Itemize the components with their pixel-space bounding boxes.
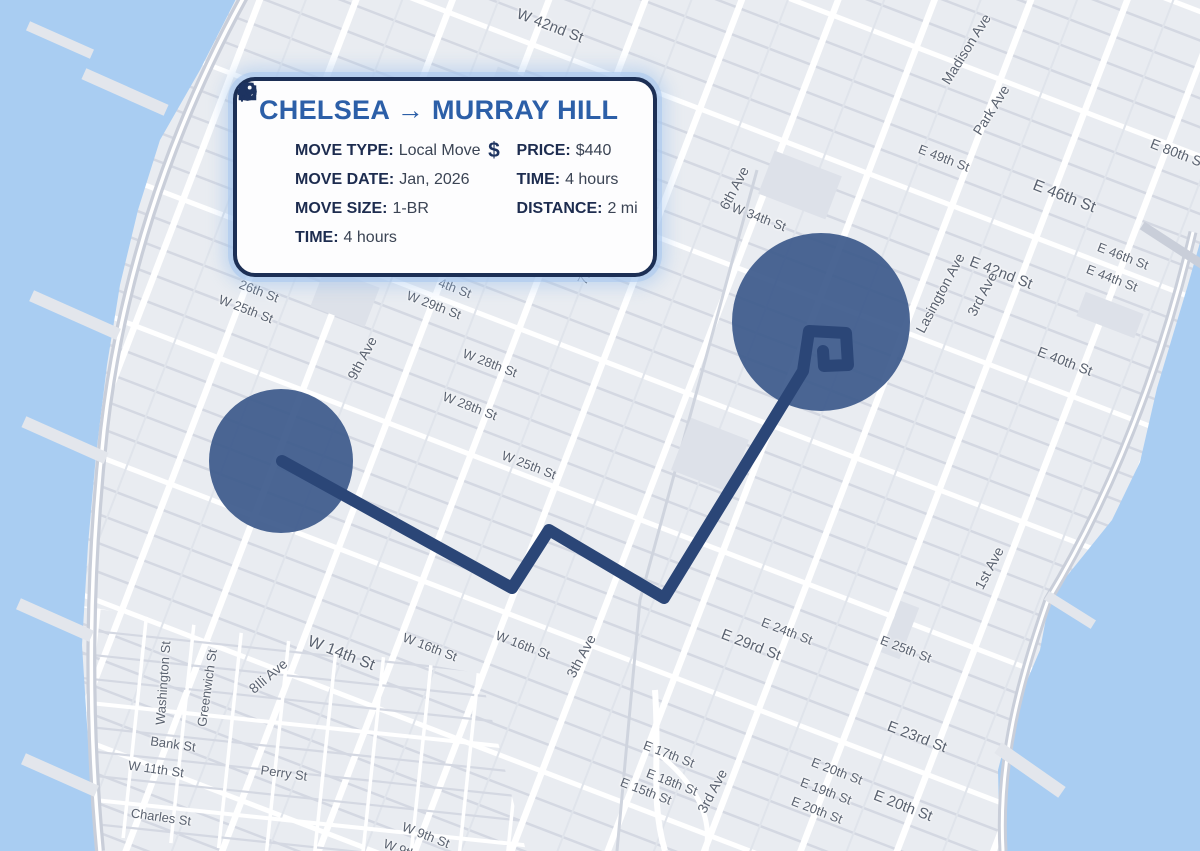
card-field-price: PRICE:$440	[517, 142, 612, 160]
field-label: TIME:	[295, 229, 339, 246]
field-label: MOVE DATE:	[295, 171, 394, 188]
card-row-distance: DISTANCE:2 mi	[481, 194, 638, 223]
card-row-move-size: MOVE SIZE:1-BR	[259, 194, 481, 223]
card-row-move-date: MOVE DATE:Jan, 2026	[259, 165, 481, 194]
field-value: Jan, 2026	[399, 171, 469, 188]
field-label: PRICE:	[517, 142, 571, 159]
card-body: MOVE TYPE:Local MoveMOVE DATE:Jan, 2026M…	[259, 136, 633, 252]
map-canvas: W 42nd StMadison AvePark AveE 49th StE 8…	[0, 0, 1200, 851]
field-value: 4 hours	[344, 229, 397, 246]
card-field-distance: DISTANCE:2 mi	[517, 200, 638, 218]
field-value: 4 hours	[565, 171, 618, 188]
field-value: $440	[576, 142, 612, 159]
field-label: MOVE TYPE:	[295, 142, 394, 159]
dollar-icon: $	[481, 140, 508, 162]
card-column-right: $PRICE:$440TIME:4 hoursDISTANCE:2 mi	[481, 136, 638, 252]
home-icon	[259, 198, 286, 220]
card-column-left: MOVE TYPE:Local MoveMOVE DATE:Jan, 2026M…	[259, 136, 481, 252]
clock-icon	[481, 169, 508, 191]
card-field-move-size: MOVE SIZE:1-BR	[295, 200, 429, 218]
move-summary-card: CHELSEA → MURRAY HILL MOVE TYPE:Local Mo…	[233, 77, 657, 277]
truck-icon	[259, 140, 286, 162]
calendar-icon	[259, 169, 286, 191]
card-row-move-type: MOVE TYPE:Local Move	[259, 136, 481, 165]
field-value: 2 mi	[607, 200, 637, 217]
card-field-move-type: MOVE TYPE:Local Move	[295, 142, 481, 160]
card-row-price: $PRICE:$440	[481, 136, 638, 165]
field-value: 1-BR	[392, 200, 428, 217]
card-row-time: TIME:4 hours	[481, 165, 638, 194]
card-field-move-date: MOVE DATE:Jan, 2026	[295, 171, 470, 189]
card-field-time: TIME:4 hours	[517, 171, 619, 189]
pin-icon	[481, 198, 508, 220]
card-row-time: TIME:4 hours	[259, 223, 481, 252]
field-label: MOVE SIZE:	[295, 200, 387, 217]
card-title: CHELSEA → MURRAY HILL	[259, 95, 633, 126]
field-label: TIME:	[517, 171, 561, 188]
clock-icon	[259, 227, 286, 249]
field-label: DISTANCE:	[517, 200, 603, 217]
field-value: Local Move	[399, 142, 481, 159]
destination-area-circle	[732, 233, 910, 411]
card-field-time: TIME:4 hours	[295, 229, 397, 247]
